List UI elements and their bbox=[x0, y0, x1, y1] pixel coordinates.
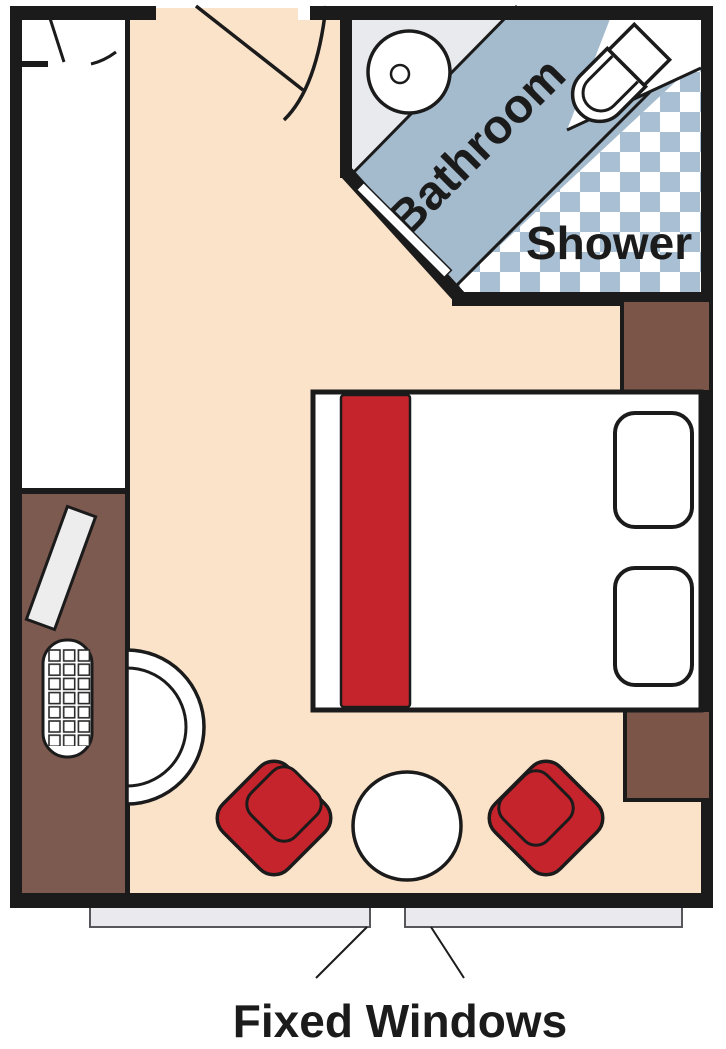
coffee-table bbox=[353, 772, 461, 880]
wall-top-right bbox=[310, 6, 713, 20]
entry-doorway-floor bbox=[156, 8, 298, 22]
coffee-table-top bbox=[353, 772, 461, 880]
closet-desk-divider bbox=[22, 488, 125, 494]
telephone-icon bbox=[43, 640, 92, 757]
wall-top-left bbox=[10, 6, 156, 20]
pillow-top bbox=[615, 413, 692, 527]
nightstand-top bbox=[622, 300, 711, 392]
sink-icon bbox=[368, 31, 450, 113]
closet-area bbox=[22, 20, 125, 488]
sink-drain bbox=[391, 65, 409, 83]
nightstand-bottom bbox=[625, 710, 711, 800]
telephone-keypad bbox=[48, 649, 91, 746]
fixed-windows-callout: Fixed Windows bbox=[233, 927, 567, 1047]
wall-left bbox=[10, 6, 22, 902]
bed-runner bbox=[341, 395, 410, 707]
callout-leader-left bbox=[316, 927, 367, 978]
wall-bottom bbox=[10, 893, 713, 908]
bathroom-left-wall bbox=[340, 6, 352, 178]
shower-label: Shower bbox=[526, 217, 692, 269]
pillow-bottom bbox=[615, 568, 692, 685]
callout-leader-right bbox=[431, 927, 464, 978]
fixed-windows-label: Fixed Windows bbox=[233, 995, 567, 1047]
bed bbox=[313, 392, 701, 710]
floor-plan-canvas: Bathroom Shower bbox=[0, 0, 726, 1049]
closet-wall-stub bbox=[14, 61, 48, 67]
floor-plan: Bathroom Shower bbox=[0, 0, 726, 1049]
